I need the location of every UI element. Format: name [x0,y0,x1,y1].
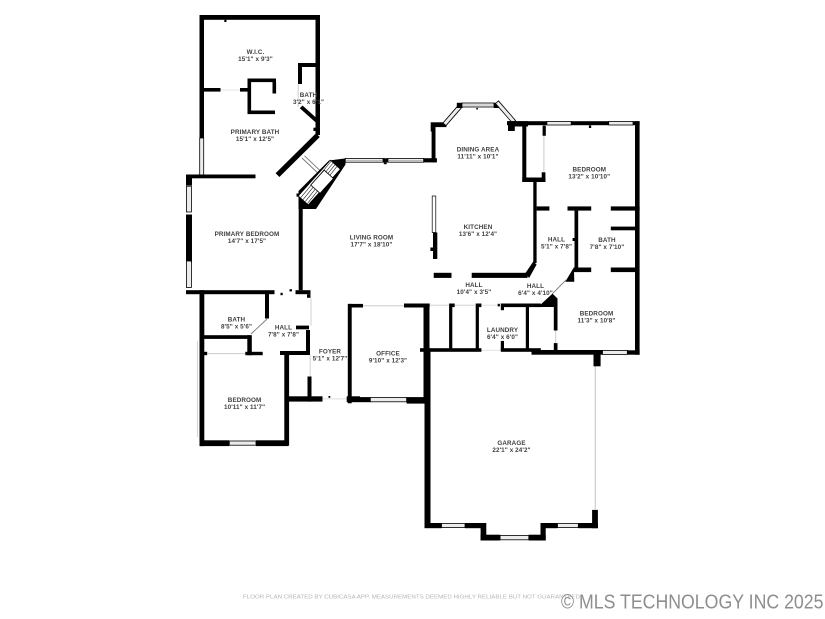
svg-text:11'3" x 10'8": 11'3" x 10'8" [578,318,616,325]
svg-text:W.I.C.: W.I.C. [247,49,265,56]
svg-text:HALL: HALL [275,324,292,331]
svg-text:22'1" x 24'2": 22'1" x 24'2" [492,447,530,454]
svg-text:14'7" x 17'5": 14'7" x 17'5" [228,238,266,245]
svg-text:LAUNDRY: LAUNDRY [487,327,519,334]
svg-text:17'7" x 18'10": 17'7" x 18'10" [351,242,393,249]
svg-text:BEDROOM: BEDROOM [580,310,614,317]
svg-text:5'1" x 12'7": 5'1" x 12'7" [313,356,348,363]
svg-text:BEDROOM: BEDROOM [573,167,607,174]
svg-text:HALL: HALL [527,283,544,290]
svg-text:7'8" x 7'8": 7'8" x 7'8" [268,332,299,339]
svg-text:9'10" x 12'3": 9'10" x 12'3" [369,358,407,365]
svg-text:DINING AREA: DINING AREA [457,146,500,153]
svg-text:© MLS TECHNOLOGY INC 2025: © MLS TECHNOLOGY INC 2025 [561,591,824,614]
svg-text:11'11" x 10'1": 11'11" x 10'1" [457,154,498,161]
svg-text:PRIMARY BATH: PRIMARY BATH [231,129,280,136]
svg-text:HALL: HALL [548,237,565,244]
svg-text:15'1" x 12'5": 15'1" x 12'5" [236,136,274,143]
svg-text:5'1" x 7'8": 5'1" x 7'8" [541,244,572,251]
svg-text:10'11" x 11'7": 10'11" x 11'7" [224,404,265,411]
svg-text:BEDROOM: BEDROOM [228,397,262,404]
svg-text:LIVING ROOM: LIVING ROOM [350,235,393,242]
svg-text:KITCHEN: KITCHEN [464,224,493,231]
svg-text:15'1" x 9'3": 15'1" x 9'3" [238,56,273,63]
svg-text:6'4" x 6'0": 6'4" x 6'0" [487,334,518,341]
svg-text:3'2" x 6'1": 3'2" x 6'1" [293,99,324,106]
svg-text:GARAGE: GARAGE [497,440,525,447]
svg-text:BATH: BATH [228,316,246,323]
svg-text:OFFICE: OFFICE [376,350,400,357]
svg-text:7'8" x 7'10": 7'8" x 7'10" [590,244,625,251]
svg-text:13'6" x 12'4": 13'6" x 12'4" [459,231,497,238]
svg-text:BATH: BATH [598,237,616,244]
svg-text:13'2" x 10'10": 13'2" x 10'10" [568,174,610,181]
svg-text:HALL: HALL [465,282,482,289]
svg-text:10'4" x 3'5": 10'4" x 3'5" [457,289,492,296]
svg-text:8'5" x 5'6": 8'5" x 5'6" [221,324,252,331]
svg-text:PRIMARY BEDROOM: PRIMARY BEDROOM [215,231,280,238]
svg-text:FLOOR PLAN CREATED BY CUBICASA: FLOOR PLAN CREATED BY CUBICASA APP. MEAS… [243,595,580,601]
svg-text:BATH: BATH [300,92,318,99]
svg-text:FOYER: FOYER [319,349,342,356]
svg-text:6'4" x 4'10": 6'4" x 4'10" [518,290,553,297]
